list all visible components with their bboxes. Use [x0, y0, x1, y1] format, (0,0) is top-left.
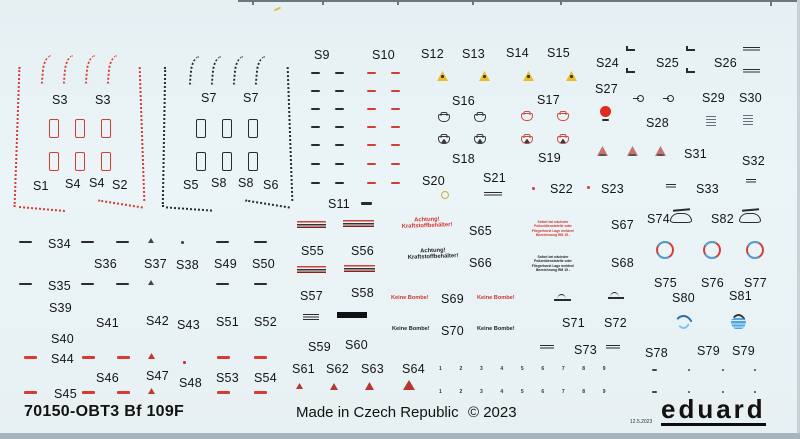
decal-mark-dash — [652, 391, 657, 393]
decal-mark-doth — [19, 206, 65, 212]
decal-mark-tri — [365, 382, 374, 390]
decal-sheet: 70150-OBT3 Bf 109F Made in Czech Republi… — [0, 0, 800, 439]
decal-mark-dash — [361, 202, 372, 205]
decal-mark-dash — [19, 283, 32, 285]
decal-mark-dash — [367, 72, 376, 74]
decal-mark-dash — [367, 144, 376, 146]
stencil-label: S1 — [33, 179, 49, 193]
stencil-label: S63 — [361, 362, 384, 376]
stencil-label: S44 — [51, 352, 74, 366]
decal-mark-dome — [739, 209, 761, 223]
decal-mark-stripe — [606, 345, 620, 349]
decal-mark-dash — [367, 182, 376, 184]
decal-mark-rect-o — [196, 119, 206, 138]
decal-mark-rect-o — [222, 119, 232, 138]
decal-mark-tb2 — [706, 116, 716, 126]
decal-mark-tb — [344, 265, 375, 274]
stencil-label: S5 — [183, 178, 199, 192]
decal-mark-dash — [81, 241, 94, 243]
copyright-text: © 2023 — [468, 404, 517, 421]
decal-mark-tb — [297, 221, 326, 229]
decal-mark-dot — [181, 241, 184, 244]
stencil-label: S17 — [537, 93, 560, 107]
decal-mark-dash — [117, 356, 130, 359]
decal-mark-doth — [166, 206, 212, 211]
decal-mark-hook — [663, 94, 674, 102]
decal-mark-curve — [211, 56, 221, 86]
decal-mark-dash — [391, 163, 400, 165]
stencil-label: S47 — [146, 369, 169, 383]
decal-mark-dash — [216, 283, 229, 285]
stencil-label: S15 — [547, 46, 570, 60]
decal-mark-dash — [19, 241, 32, 243]
stencil-label: S42 — [146, 314, 169, 328]
decal-mark-dash — [311, 182, 320, 184]
decal-mark-dot — [688, 391, 690, 393]
stencil-label: S49 — [214, 257, 237, 271]
stencil-text: Keine Bombe! — [477, 326, 515, 332]
stencil-text: 1 2 3 4 5 6 7 8 9 — [439, 366, 606, 372]
decal-mark-bar — [397, 0, 399, 5]
eduard-logo: eduard — [661, 396, 766, 426]
made-in-text: Made in Czech Republic — [296, 404, 459, 421]
decal-mark-tb2 — [743, 115, 753, 125]
decal-mark-dash — [24, 356, 37, 359]
stencil-label: S7 — [201, 91, 217, 105]
decal-mark-rect-o — [222, 152, 232, 171]
decal-mark-dot — [527, 75, 530, 78]
decal-mark-bar — [252, 0, 254, 5]
decal-mark-dot — [183, 361, 186, 364]
stencil-label: S64 — [402, 362, 425, 376]
decal-mark-dash — [254, 391, 267, 394]
decal-mark-arcf — [729, 314, 748, 329]
stencil-label: S6 — [263, 178, 279, 192]
decal-mark-dash — [335, 182, 344, 184]
stencil-label: S16 — [452, 94, 475, 108]
stencil-label: S68 — [611, 256, 634, 270]
decal-mark-tri — [296, 383, 303, 389]
stencil-label: S22 — [550, 182, 573, 196]
stencil-label: S29 — [702, 91, 725, 105]
decal-mark-rect-o — [75, 119, 85, 138]
decal-mark-cup — [474, 114, 486, 122]
decal-mark-ring — [746, 241, 764, 259]
stencil-label: S8 — [238, 176, 254, 190]
stencil-label: S33 — [696, 182, 719, 196]
stencil-text: Keine Bombe! — [392, 326, 430, 332]
stencil-label: S58 — [351, 286, 374, 300]
stencil-label: S74 — [647, 212, 670, 226]
decal-mark-dash — [311, 90, 320, 92]
stencil-label: S79 — [697, 344, 720, 358]
decal-mark-curve — [233, 56, 243, 86]
stencil-label: S23 — [601, 182, 624, 196]
decal-mark-dot — [441, 75, 444, 78]
decal-mark-curve — [107, 55, 117, 85]
decal-mark-dash — [367, 126, 376, 128]
stencil-text: Keine Bombe! — [391, 295, 429, 301]
decal-mark-cup — [521, 113, 533, 121]
decal-mark-foil — [608, 292, 624, 299]
decal-mark-dash — [82, 356, 95, 359]
decal-mark-dash — [391, 72, 400, 74]
stencil-label: S80 — [672, 291, 695, 305]
stencil-label: S82 — [711, 212, 734, 226]
stencil-label: S24 — [596, 56, 619, 70]
decal-mark-dot — [587, 186, 590, 189]
stencil-label: S61 — [292, 362, 315, 376]
decal-mark-tri — [148, 280, 154, 285]
decal-mark-bar — [472, 0, 474, 5]
decal-mark-bar — [322, 0, 324, 5]
stencil-label: S51 — [216, 315, 239, 329]
decal-mark-tri — [148, 388, 155, 394]
product-code: 70150-OBT3 Bf 109F — [24, 403, 184, 421]
decal-mark-cup — [557, 113, 569, 121]
stencil-label: S4 — [65, 177, 81, 191]
decal-mark-rect-o — [248, 152, 258, 171]
stencil-label: S81 — [729, 289, 752, 303]
decal-mark-hook — [633, 94, 644, 102]
stencil-text: Achtung! Kraftstoffbehälter! — [396, 216, 458, 231]
stencil-label: S7 — [243, 91, 259, 105]
decal-mark-dash — [335, 108, 344, 110]
stencil-label: S77 — [744, 276, 767, 290]
decal-mark-dash — [254, 241, 267, 243]
stencil-label: S57 — [300, 289, 323, 303]
stencil-label: S11 — [328, 197, 350, 211]
stencil-label: S4 — [89, 176, 105, 190]
decal-mark-tri — [403, 380, 415, 390]
decal-mark-dash — [391, 108, 400, 110]
decal-mark-arcb — [673, 315, 694, 329]
stencil-label: S48 — [179, 376, 202, 390]
decal-mark-stripe — [743, 69, 760, 74]
decal-mark-dash — [274, 7, 281, 12]
stencil-label: S70 — [441, 324, 464, 338]
stencil-label: S2 — [112, 178, 128, 192]
decal-mark-dotv — [14, 67, 21, 207]
stencil-label: S19 — [538, 151, 561, 165]
stencil-label: S21 — [483, 171, 506, 185]
stencil-label: S69 — [441, 292, 464, 306]
decal-mark-dash — [24, 391, 37, 394]
decal-mark-dome — [670, 209, 692, 223]
decal-mark-dash — [117, 391, 130, 394]
decal-mark-dash — [391, 126, 400, 128]
stencil-label: S55 — [301, 244, 324, 258]
stencil-text: 1 2 3 4 5 6 7 8 9 — [439, 389, 606, 395]
decal-mark-ring — [656, 241, 674, 259]
stencil-label: S53 — [216, 371, 239, 385]
print-date: 12.5.2023 — [630, 419, 652, 425]
stencil-label: S54 — [254, 371, 277, 385]
decal-mark-dash — [335, 72, 344, 74]
stencil-label: S67 — [611, 218, 634, 232]
decal-mark-tickdash — [626, 49, 635, 51]
decal-mark-dash — [652, 369, 657, 371]
decal-mark-dash — [367, 163, 376, 165]
stencil-label: S35 — [48, 279, 71, 293]
decal-mark-dash — [367, 108, 376, 110]
decal-sheet-photo: 70150-OBT3 Bf 109F Made in Czech Republi… — [0, 0, 800, 439]
decal-mark-stripe — [743, 47, 760, 52]
decal-mark-bar — [337, 312, 367, 318]
stencil-label: S36 — [94, 257, 117, 271]
decal-mark-tickdash — [686, 71, 695, 73]
stencil-label: S30 — [739, 91, 762, 105]
decal-mark-tri — [330, 383, 338, 390]
stencil-text: Sofort bei nächster Polizeidienststelle … — [524, 220, 582, 238]
stencil-label: S37 — [144, 257, 167, 271]
stencil-label: S13 — [462, 47, 485, 61]
decal-mark-ring — [703, 241, 721, 259]
stencil-label: S26 — [714, 56, 737, 70]
decal-mark-dash — [82, 391, 95, 394]
decal-mark-dash — [217, 356, 230, 359]
decal-mark-foil — [554, 294, 571, 301]
decal-mark-tri — [148, 353, 155, 359]
decal-mark-dash — [216, 241, 229, 243]
decal-mark-stripe — [303, 314, 319, 320]
decal-mark-rect-o — [196, 152, 206, 171]
decal-mark-tb — [297, 266, 326, 274]
decal-mark-rect-o — [49, 119, 59, 138]
stencil-label: S3 — [95, 93, 111, 107]
decal-mark-dot — [754, 369, 756, 371]
decal-mark-circle-o — [441, 191, 449, 199]
decal-mark-dash — [311, 163, 320, 165]
stencil-label: S46 — [96, 371, 119, 385]
decal-mark-dotv — [287, 67, 294, 201]
decal-mark-dot — [483, 75, 486, 78]
stencil-label: S38 — [176, 258, 199, 272]
decal-mark-dash — [311, 72, 320, 74]
stencil-label: S25 — [656, 56, 679, 70]
decal-mark-curve — [85, 55, 95, 85]
stencil-label: S32 — [742, 154, 765, 168]
decal-mark-rect-o — [49, 152, 59, 171]
decal-mark-dash — [116, 283, 129, 285]
stencil-label: S59 — [308, 340, 331, 354]
decal-mark-dot — [722, 391, 724, 393]
decal-mark-bar — [0, 433, 800, 439]
stencil-label: S34 — [48, 237, 71, 251]
stencil-label: S27 — [595, 82, 618, 96]
decal-mark-dash — [116, 241, 129, 243]
decal-mark-dash — [391, 90, 400, 92]
decal-mark-dash — [335, 163, 344, 165]
decal-mark-rect-o — [75, 152, 85, 171]
stencil-label: S10 — [372, 48, 395, 62]
stencil-label: S8 — [211, 176, 227, 190]
stencil-label: S43 — [177, 318, 200, 332]
decal-mark-dash — [391, 182, 400, 184]
stencil-label: S20 — [422, 174, 445, 188]
decal-mark-dash — [602, 119, 609, 121]
decal-mark-dot — [570, 75, 573, 78]
decal-mark-circle-f — [600, 106, 611, 117]
decal-mark-cupt — [438, 136, 450, 144]
decal-mark-dot — [754, 391, 756, 393]
decal-mark-dot — [688, 369, 690, 371]
stencil-label: S72 — [604, 316, 627, 330]
decal-mark-dash — [311, 108, 320, 110]
decal-mark-dash — [311, 144, 320, 146]
decal-mark-curve — [189, 56, 199, 86]
stencil-label: S9 — [314, 48, 330, 62]
stencil-label: S3 — [52, 93, 68, 107]
decal-mark-stripe — [666, 184, 676, 188]
decal-mark-curve — [41, 55, 51, 85]
stencil-label: S41 — [96, 316, 119, 330]
decal-mark-stripe — [540, 345, 554, 349]
decal-mark-curve — [63, 55, 73, 85]
stencil-label: S75 — [654, 276, 677, 290]
stencil-label: S65 — [469, 224, 492, 238]
decal-mark-bar — [770, 0, 772, 6]
decal-mark-rect-o — [101, 152, 111, 171]
decal-mark-dash — [311, 126, 320, 128]
decal-mark-dash — [335, 126, 344, 128]
stencil-text: Keine Bombe! — [477, 295, 515, 301]
stencil-text: Achtung! Kraftstoffbehälter! — [402, 247, 464, 262]
stencil-label: S78 — [645, 346, 668, 360]
decal-mark-curve — [255, 56, 265, 86]
decal-mark-dotv — [162, 67, 166, 207]
decal-mark-dot — [722, 369, 724, 371]
stencil-label: S45 — [54, 387, 77, 401]
decal-mark-dash — [367, 90, 376, 92]
decal-mark-dash — [254, 356, 267, 359]
decal-mark-tri — [148, 238, 154, 243]
decal-mark-cupt — [557, 136, 569, 144]
decal-mark-dot — [532, 187, 535, 190]
decal-mark-stripe — [484, 192, 502, 196]
decal-mark-tickdash — [686, 49, 695, 51]
decal-mark-tickdash — [626, 71, 635, 73]
stencil-label: S60 — [345, 338, 368, 352]
stencil-label: S71 — [562, 316, 585, 330]
stencil-text: Sofort bei nächster Polizeidienststelle … — [524, 255, 582, 273]
stencil-label: S28 — [646, 116, 669, 130]
stencil-label: S39 — [49, 301, 72, 315]
decal-mark-dash — [254, 283, 267, 285]
stencil-label: S66 — [469, 256, 492, 270]
stencil-label: S62 — [326, 362, 349, 376]
decal-mark-cupt — [521, 136, 533, 144]
decal-mark-dash — [657, 154, 664, 156]
stencil-label: S12 — [421, 47, 444, 61]
decal-mark-doth — [98, 199, 143, 208]
stencil-label: S52 — [254, 315, 277, 329]
decal-mark-dash — [81, 283, 94, 285]
decal-mark-tb — [343, 220, 374, 229]
stencil-label: S14 — [506, 46, 529, 60]
decal-mark-dash — [335, 90, 344, 92]
decal-mark-bar — [560, 0, 562, 5]
stencil-label: S50 — [252, 257, 275, 271]
decal-mark-dash — [217, 391, 230, 394]
decal-mark-rect-o — [248, 119, 258, 138]
decal-mark-dash — [629, 154, 636, 156]
stencil-label: S18 — [452, 152, 475, 166]
stencil-label: S76 — [701, 276, 724, 290]
decal-mark-rect-o — [101, 119, 111, 138]
decal-mark-stripe — [746, 179, 756, 183]
decal-mark-dash — [335, 144, 344, 146]
decal-mark-cupt — [474, 136, 486, 144]
decal-mark-dash — [391, 144, 400, 146]
stencil-label: S31 — [684, 147, 707, 161]
stencil-label: S79 — [732, 344, 755, 358]
stencil-label: S73 — [574, 343, 597, 357]
decal-mark-dotv — [139, 67, 146, 201]
stencil-label: S56 — [351, 244, 374, 258]
stencil-label: S40 — [51, 332, 74, 346]
decal-mark-dash — [599, 154, 606, 156]
decal-mark-doth — [245, 199, 290, 208]
decal-mark-cup — [438, 114, 450, 122]
